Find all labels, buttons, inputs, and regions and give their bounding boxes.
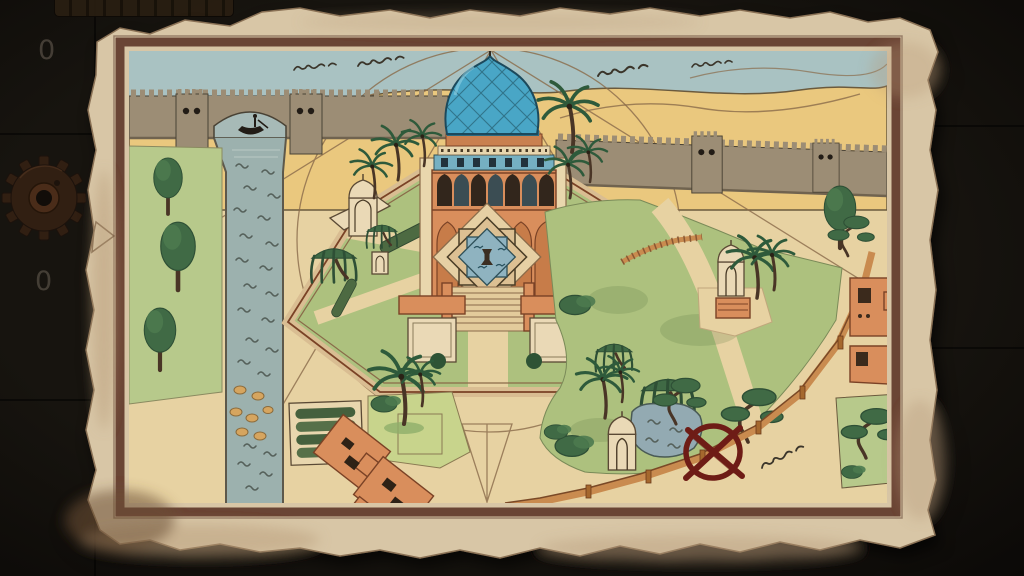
watchtower	[813, 141, 839, 192]
watchtower	[290, 92, 322, 154]
niche	[372, 252, 388, 274]
game-scene: 0 0	[0, 0, 1024, 576]
watchtower	[692, 134, 722, 193]
counter-top: 0	[38, 37, 55, 64]
scene-art	[0, 0, 1024, 576]
gear-icon[interactable]	[2, 156, 86, 240]
gazebo-steps	[716, 298, 750, 318]
watchtower	[176, 92, 208, 154]
parchment-map[interactable]	[65, 8, 945, 561]
counter-bottom: 0	[35, 268, 52, 295]
map-artwork	[89, 40, 902, 542]
left-green-strip	[129, 146, 222, 404]
